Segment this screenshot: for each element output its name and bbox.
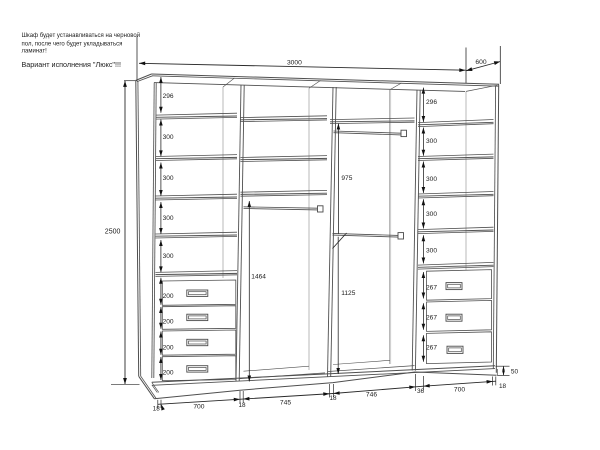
- svg-text:3000: 3000: [287, 59, 302, 66]
- svg-text:300: 300: [163, 253, 174, 260]
- svg-text:300: 300: [163, 134, 174, 141]
- svg-text:Шкаф будет устанавливаться на: Шкаф будет устанавливаться на черновой: [22, 32, 141, 39]
- svg-text:Вариант исполнения "Люкс"!!!: Вариант исполнения "Люкс"!!!: [22, 60, 121, 69]
- svg-text:975: 975: [341, 175, 352, 182]
- svg-text:700: 700: [193, 403, 204, 410]
- svg-text:1464: 1464: [251, 274, 266, 281]
- svg-text:300: 300: [426, 138, 437, 145]
- svg-text:18: 18: [238, 402, 246, 409]
- svg-text:200: 200: [163, 319, 174, 326]
- svg-text:36: 36: [417, 388, 425, 395]
- svg-text:296: 296: [426, 99, 437, 106]
- svg-text:300: 300: [426, 176, 437, 183]
- svg-text:267: 267: [426, 344, 437, 351]
- svg-text:300: 300: [426, 211, 437, 218]
- svg-text:300: 300: [163, 175, 174, 182]
- svg-text:1125: 1125: [341, 290, 356, 297]
- svg-text:300: 300: [163, 215, 174, 222]
- svg-text:пол, после чего будет укладыва: пол, после чего будет укладываться: [22, 41, 123, 47]
- svg-text:746: 746: [366, 392, 377, 399]
- svg-text:2500: 2500: [105, 229, 121, 236]
- svg-text:ламинат!: ламинат!: [22, 49, 48, 55]
- svg-text:200: 200: [163, 344, 174, 351]
- svg-text:18: 18: [153, 406, 161, 413]
- svg-text:18: 18: [499, 383, 507, 390]
- svg-text:267: 267: [426, 284, 437, 291]
- svg-text:745: 745: [280, 399, 291, 406]
- svg-text:700: 700: [454, 386, 465, 393]
- svg-text:200: 200: [163, 293, 174, 300]
- svg-text:18: 18: [329, 395, 337, 402]
- svg-text:296: 296: [163, 93, 174, 100]
- svg-text:300: 300: [426, 248, 437, 255]
- svg-text:600: 600: [475, 59, 486, 66]
- svg-text:267: 267: [426, 314, 437, 321]
- svg-text:200: 200: [163, 369, 174, 376]
- svg-text:50: 50: [511, 368, 519, 375]
